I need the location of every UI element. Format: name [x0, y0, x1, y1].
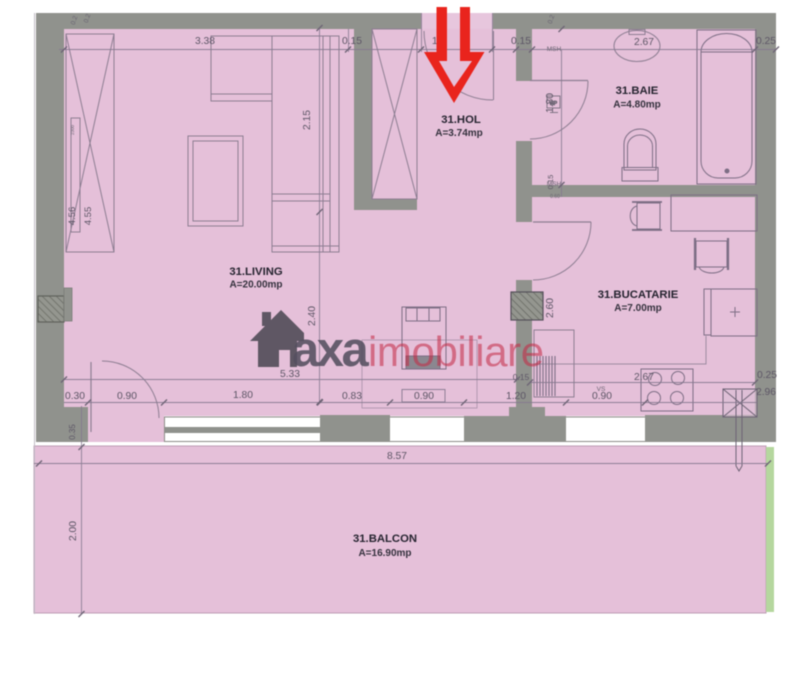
svg-text:2.00: 2.00 [68, 521, 79, 541]
svg-text:2.67: 2.67 [634, 37, 654, 48]
svg-text:2.96: 2.96 [756, 387, 776, 398]
svg-text:4.56: 4.56 [67, 207, 78, 226]
svg-text:0.15: 0.15 [511, 36, 531, 47]
svg-text:axa: axa [292, 323, 370, 377]
svg-text:2300: 2300 [70, 124, 75, 135]
svg-text:A=7.00mp: A=7.00mp [614, 303, 662, 314]
svg-text:4.55: 4.55 [83, 207, 94, 226]
svg-text:0.90: 0.90 [592, 391, 612, 402]
svg-text:31.LIVING: 31.LIVING [229, 266, 283, 278]
svg-text:0.25: 0.25 [757, 370, 777, 381]
svg-text:A=3.74mp: A=3.74mp [435, 128, 483, 139]
svg-text:1.20: 1.20 [506, 391, 526, 402]
svg-text:0.90: 0.90 [117, 391, 137, 402]
svg-text:A=4.80mp: A=4.80mp [613, 100, 661, 111]
svg-text:MSH: MSH [547, 46, 562, 53]
svg-text:0.15: 0.15 [342, 36, 362, 47]
svg-text:1.80: 1.80 [233, 390, 253, 401]
svg-text:31.HOL: 31.HOL [441, 114, 481, 126]
svg-text:0.60: 0.60 [550, 194, 560, 200]
svg-text:0.35: 0.35 [68, 424, 77, 440]
svg-text:imobiliare: imobiliare [368, 328, 544, 375]
svg-text:2.67: 2.67 [634, 372, 654, 383]
svg-text:MSH: MSH [547, 181, 562, 188]
svg-text:0.90: 0.90 [414, 391, 434, 402]
svg-text:0.25: 0.25 [756, 36, 776, 47]
svg-text:3.38: 3.38 [195, 36, 215, 47]
svg-text:2.15: 2.15 [302, 110, 313, 130]
svg-text:A=20.00mp: A=20.00mp [229, 280, 282, 291]
svg-text:31.BALCON: 31.BALCON [353, 533, 417, 545]
svg-text:31.BAIE: 31.BAIE [616, 85, 659, 97]
svg-text:8.57: 8.57 [387, 451, 407, 462]
svg-text:0.30: 0.30 [65, 391, 85, 402]
svg-text:1.80: 1.80 [545, 93, 556, 113]
svg-text:31.BUCATARIE: 31.BUCATARIE [598, 289, 679, 301]
svg-text:0.83: 0.83 [342, 391, 362, 402]
svg-text:2.60: 2.60 [545, 298, 556, 318]
svg-text:A=16.90mp: A=16.90mp [358, 548, 411, 559]
